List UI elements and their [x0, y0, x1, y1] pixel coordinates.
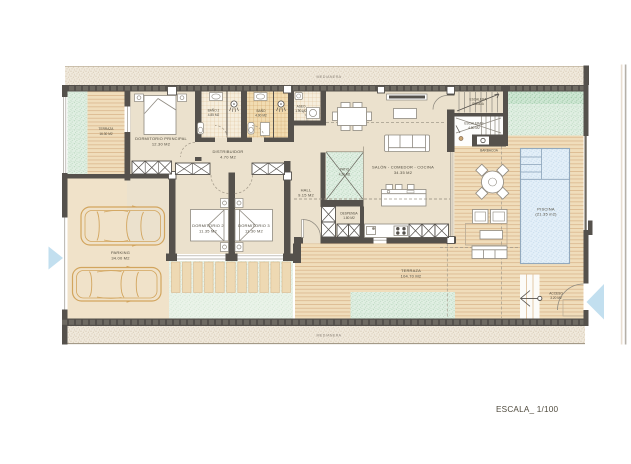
svg-text:4.20 M2: 4.20 M2	[339, 173, 351, 177]
svg-text:DORMITORIO 3: DORMITORIO 3	[238, 223, 270, 228]
svg-text:DORMITORIO PRINCIPAL: DORMITORIO PRINCIPAL	[135, 136, 187, 141]
svg-text:DISTRIBUIDOR: DISTRIBUIDOR	[212, 149, 243, 154]
svg-text:SUBIDA: SUBIDA	[472, 102, 485, 106]
svg-text:ACCESO: ACCESO	[549, 292, 563, 296]
svg-text:ASEO: ASEO	[297, 105, 306, 109]
svg-text:ESCALERAS: ESCALERAS	[464, 122, 483, 126]
svg-text:4.70 M2: 4.70 M2	[220, 155, 236, 160]
svg-text:DESPENSA: DESPENSA	[340, 212, 358, 216]
svg-text:34.00 M2: 34.00 M2	[111, 256, 130, 261]
svg-text:11.30 M2: 11.30 M2	[245, 229, 264, 234]
svg-text:MEDIANERA: MEDIANERA	[317, 75, 342, 79]
svg-text:1.80 M2: 1.80 M2	[343, 216, 355, 220]
svg-text:MEDIANERA: MEDIANERA	[317, 334, 342, 338]
svg-text:BARBACOA: BARBACOA	[480, 149, 499, 153]
svg-text:(21.35 m2): (21.35 m2)	[535, 212, 557, 217]
svg-text:ESCALERA: ESCALERA	[469, 98, 487, 102]
svg-text:BAÑO: BAÑO	[256, 108, 266, 113]
svg-text:9.15 M2: 9.15 M2	[298, 193, 314, 198]
svg-text:1.50 M2: 1.50 M2	[295, 109, 307, 113]
svg-text:DORMITORIO 2: DORMITORIO 2	[192, 223, 224, 228]
svg-text:TERRAZA: TERRAZA	[401, 268, 421, 273]
svg-text:ESCALA_ 1/100: ESCALA_ 1/100	[496, 405, 558, 414]
svg-text:4.90 M2: 4.90 M2	[255, 114, 267, 118]
svg-text:12.30 M2: 12.30 M2	[152, 142, 171, 147]
svg-text:34.35 M2: 34.35 M2	[394, 170, 413, 175]
svg-text:4.80 M2: 4.80 M2	[468, 126, 480, 130]
svg-text:BAÑO 2: BAÑO 2	[208, 108, 220, 113]
svg-text:PARKING: PARKING	[111, 250, 130, 255]
svg-text:3.20 M2: 3.20 M2	[550, 296, 562, 300]
svg-text:TERRAZA: TERRAZA	[99, 127, 115, 131]
svg-text:PATIO: PATIO	[340, 168, 350, 172]
svg-text:SALÓN - COMEDOR - COCINA: SALÓN - COMEDOR - COCINA	[372, 165, 434, 170]
svg-text:4.85 M2: 4.85 M2	[208, 113, 220, 117]
svg-text:104.70 M2: 104.70 M2	[401, 274, 422, 279]
svg-text:16.30 M2: 16.30 M2	[99, 132, 113, 136]
svg-text:11.35 M2: 11.35 M2	[199, 229, 218, 234]
